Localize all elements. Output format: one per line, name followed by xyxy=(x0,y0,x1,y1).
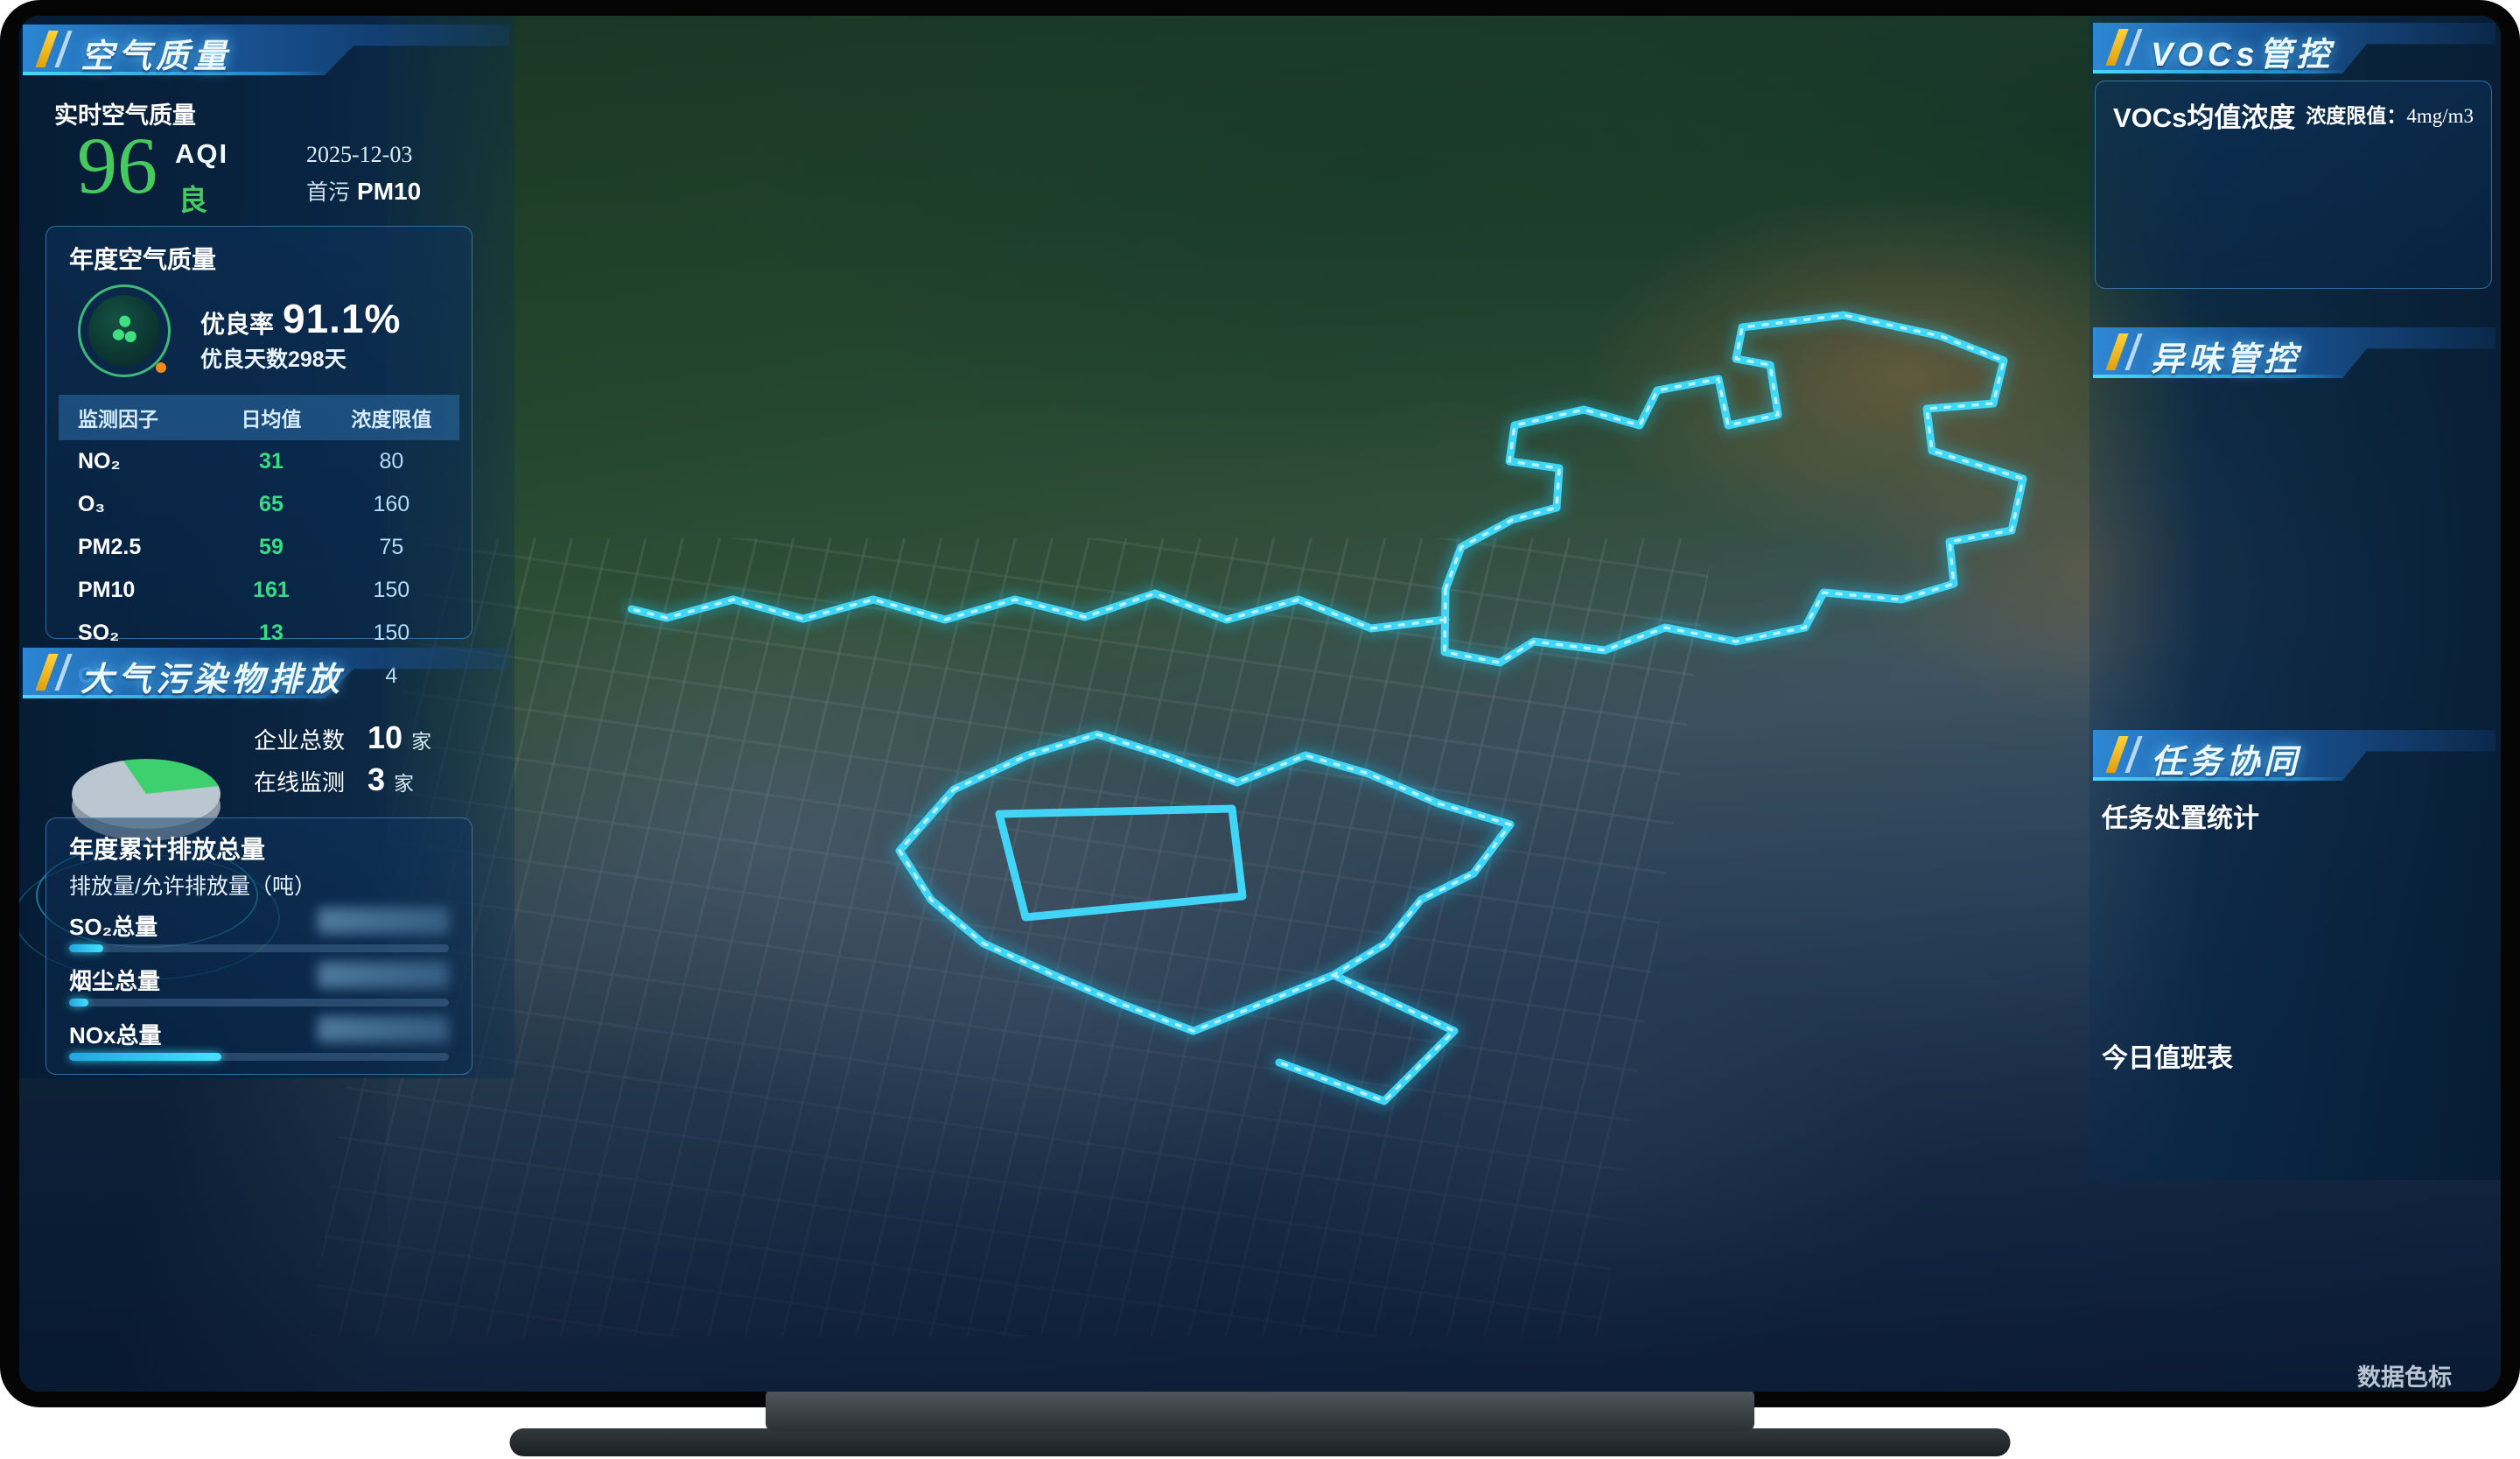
duty-roster-title: 今日值班表 xyxy=(2102,1036,2233,1075)
emissions-header: 大气污染物排放 xyxy=(23,648,509,698)
tv-frame: 空气质量 实时空气质量 96 AQI 良 2025-12-03 首污PM10 年… xyxy=(0,0,2520,1407)
dashboard-screen: 空气质量 实时空气质量 96 AQI 良 2025-12-03 首污PM10 年… xyxy=(19,16,2501,1392)
enterprise-stats: 企业总数10家 在线监测3家 xyxy=(19,707,514,812)
task-stats-label: 任务处置统计 xyxy=(2102,804,2259,833)
vocs-header: VOCs管控 xyxy=(2093,23,2495,74)
vocs-card-title: VOCs均值浓度 xyxy=(2113,95,2295,135)
annual-emission-subtitle: 排放量/允许排放量（吨） xyxy=(69,869,316,901)
annual-emission-card: 年度累计排放总量 排放量/允许排放量（吨） SO₂总量烟尘总量NOx总量 xyxy=(45,817,472,1075)
table-header: 日均值 xyxy=(219,395,324,440)
online-monitor-line: 在线监测3家 xyxy=(254,761,414,798)
eco-ring-icon xyxy=(78,284,171,377)
tv-stand-base xyxy=(510,1428,2011,1456)
odor-title: 异味管控 xyxy=(2151,332,2301,380)
redacted-value xyxy=(318,962,449,988)
redacted-value xyxy=(318,1016,449,1042)
good-rate: 优良率91.1% xyxy=(200,295,401,342)
aqi-label: AQI xyxy=(175,138,228,170)
odor-header: 异味管控 xyxy=(2093,327,2495,378)
vocs-title: VOCs管控 xyxy=(2151,27,2334,75)
table-row: PM2.55975 xyxy=(59,526,459,569)
emission-bar: SO₂总量 xyxy=(69,909,449,942)
enterprise-pie-chart xyxy=(59,719,234,824)
air-quality-header: 空气质量 xyxy=(23,25,509,75)
aqi-date: 2025-12-03 xyxy=(306,142,412,168)
tv-stand-neck xyxy=(766,1388,1754,1432)
legend-caption: 数据色标 xyxy=(2357,1358,2452,1392)
table-row: NO₂3180 xyxy=(59,440,459,483)
tasks-title: 任务协同 xyxy=(2151,734,2301,782)
leaves-icon xyxy=(101,308,147,354)
company-total-line: 企业总数10家 xyxy=(254,719,431,756)
annual-emission-title: 年度累计排放总量 xyxy=(69,831,265,866)
redacted-value xyxy=(318,908,449,934)
tasks-header: 任务协同 xyxy=(2093,730,2495,781)
task-stats-row: 任务处置统计 xyxy=(2102,796,2501,831)
air-quality-title: 空气质量 xyxy=(80,29,231,77)
table-header: 浓度限值 xyxy=(324,395,459,440)
table-header: 监测因子 xyxy=(59,395,219,440)
emission-bar: NOx总量 xyxy=(69,1018,449,1050)
ring-progress-dot xyxy=(156,362,166,373)
primary-pollutant: 首污PM10 xyxy=(306,175,421,207)
good-days: 优良天数298天 xyxy=(200,342,346,374)
vocs-limit: 浓度限值：4mg/m3 xyxy=(2306,99,2474,129)
emissions-title: 大气污染物排放 xyxy=(80,652,344,700)
table-row: O₃65160 xyxy=(59,483,459,526)
right-panel-column: VOCs管控 VOCs均值浓度 浓度限值：4mg/m3 异味管控 xyxy=(2089,16,2501,1392)
aqi-level: 良 xyxy=(178,177,207,219)
annual-air-quality-card: 年度空气质量 优良率91.1% xyxy=(45,226,472,639)
table-row: PM10161150 xyxy=(59,569,459,612)
data-color-legend: 数据色标 xyxy=(2357,1358,2478,1392)
vocs-card: VOCs均值浓度 浓度限值：4mg/m3 xyxy=(2095,81,2492,289)
aqi-value: 96 xyxy=(77,119,157,212)
annual-air-title: 年度空气质量 xyxy=(69,241,216,276)
left-panel-column: 空气质量 实时空气质量 96 AQI 良 2025-12-03 首污PM10 年… xyxy=(19,16,514,1392)
emission-bar: 烟尘总量 xyxy=(69,964,449,996)
